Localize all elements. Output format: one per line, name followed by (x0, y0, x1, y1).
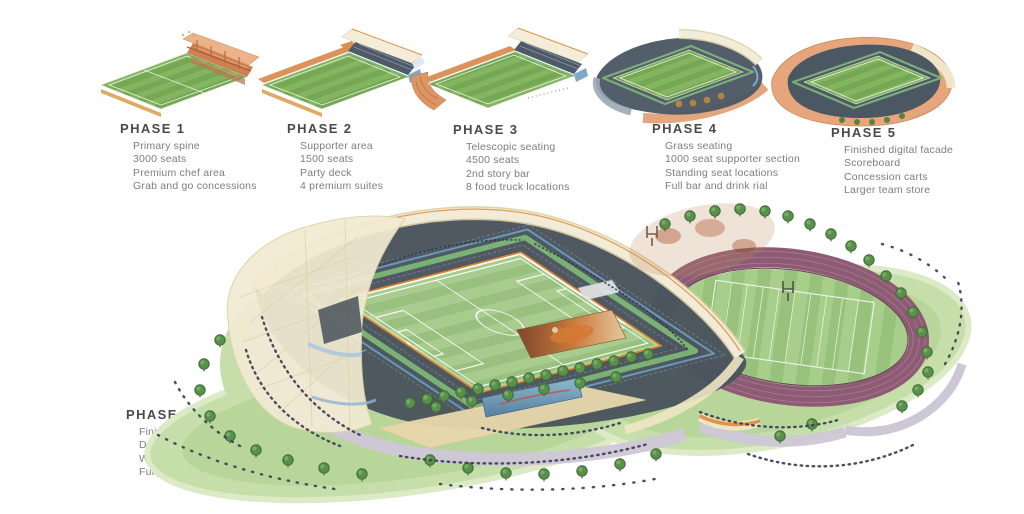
phase-3-items: Telescopic seating 4500 seats 2nd story … (453, 141, 570, 195)
phase-4-item: Standing seat locations (665, 167, 800, 180)
stadium-phasing-diagram: PHASE 1 Primary spine 3000 seats Premium… (0, 0, 1024, 514)
phase-5-item: Concession carts (844, 171, 953, 184)
phase-5-note: PHASE 5 Finished digital facade Scoreboa… (831, 125, 953, 198)
phase-1-title: PHASE 1 (120, 121, 257, 136)
phase-1-item: Primary spine (133, 140, 257, 153)
phase-4-items: Grass seating 1000 seat supporter sectio… (652, 140, 800, 194)
phase-2-thumbnail (256, 27, 431, 123)
phase-2-title: PHASE 2 (287, 121, 383, 136)
phase-2-note: PHASE 2 Supporter area 1500 seats Party … (287, 121, 383, 194)
phase-3-title: PHASE 3 (453, 122, 570, 137)
phase-2-items: Supporter area 1500 seats Party deck 4 p… (287, 140, 383, 194)
phase-4-stadium-illustration (596, 34, 765, 118)
phase-2-item: Supporter area (300, 140, 383, 153)
phase-4-item: 1000 seat supporter section (665, 153, 800, 166)
phase-1-note: PHASE 1 Primary spine 3000 seats Premium… (120, 121, 257, 194)
phase-1-item: 3000 seats (133, 153, 257, 166)
phase-3-stadium-illustration (412, 28, 588, 110)
phase-1-items: Primary spine 3000 seats Premium chef ar… (120, 140, 257, 194)
phase-5-stadium-illustration (772, 37, 952, 126)
phase-2-stadium-illustration (258, 29, 425, 117)
phase-3-note: PHASE 3 Telescopic seating 4500 seats 2n… (453, 122, 570, 195)
phase-4-title: PHASE 4 (652, 121, 800, 136)
phase-4-item: Grass seating (665, 140, 800, 153)
phase-2-item: 1500 seats (300, 153, 383, 166)
phase-3-item: Telescopic seating (466, 141, 570, 154)
phase-1-item: Premium chef area (133, 167, 257, 180)
phase-5-item: Finished digital facade (844, 144, 953, 157)
phase-1-thumbnail (95, 27, 260, 123)
phase-3-item: 2nd story bar (466, 168, 570, 181)
phase-5-items: Finished digital facade Scoreboard Conce… (831, 144, 953, 198)
phase-6-main-illustration (100, 192, 990, 504)
phase-3-item: 4500 seats (466, 154, 570, 167)
phase-1-stadium-illustration (101, 31, 259, 117)
phase-4-note: PHASE 4 Grass seating 1000 seat supporte… (652, 121, 800, 194)
phase-3-thumbnail (408, 26, 598, 124)
phase-2-item: Party deck (300, 167, 383, 180)
phase-5-item: Scoreboard (844, 157, 953, 170)
phase-5-title: PHASE 5 (831, 125, 953, 140)
phase-4-thumbnail (583, 26, 778, 126)
